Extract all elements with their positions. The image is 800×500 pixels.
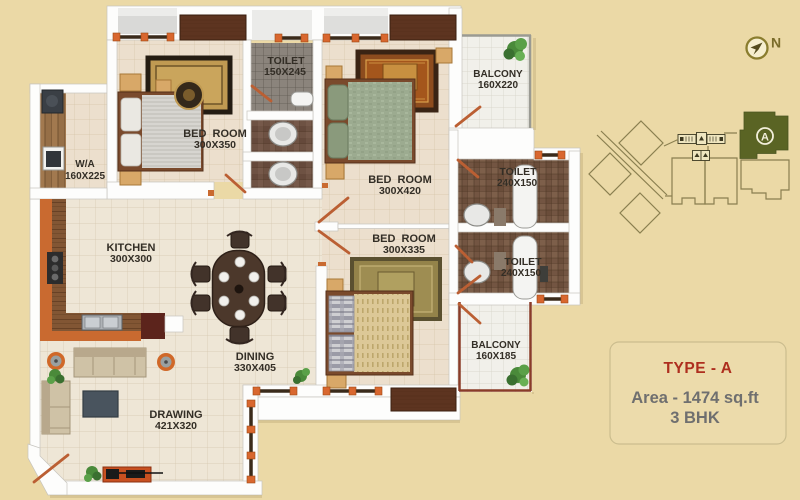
svg-text:150X245: 150X245 [264, 66, 306, 78]
svg-text:160X220: 160X220 [478, 80, 518, 91]
svg-text:240X150: 240X150 [501, 268, 541, 279]
svg-text:300X335: 300X335 [383, 244, 425, 256]
svg-text:300X420: 300X420 [379, 185, 421, 197]
svg-text:300X350: 300X350 [194, 139, 236, 151]
svg-text:A: A [761, 132, 769, 144]
svg-text:3 BHK: 3 BHK [670, 409, 720, 427]
svg-text:TOILET: TOILET [504, 256, 542, 268]
svg-text:240X150: 240X150 [497, 178, 537, 189]
svg-text:BALCONY: BALCONY [473, 69, 523, 80]
svg-text:160X225: 160X225 [65, 171, 105, 182]
svg-text:300X300: 300X300 [110, 253, 152, 265]
svg-text:Area - 1474 sq.ft: Area - 1474 sq.ft [631, 389, 759, 407]
svg-text:TOILET: TOILET [499, 166, 537, 178]
svg-text:W/A: W/A [75, 159, 94, 170]
svg-text:N: N [771, 35, 781, 51]
svg-text:421X320: 421X320 [155, 420, 197, 432]
svg-text:160X185: 160X185 [476, 351, 516, 362]
svg-text:330X405: 330X405 [234, 362, 276, 374]
svg-text:TYPE - A: TYPE - A [664, 360, 733, 377]
svg-text:BALCONY: BALCONY [471, 340, 521, 351]
